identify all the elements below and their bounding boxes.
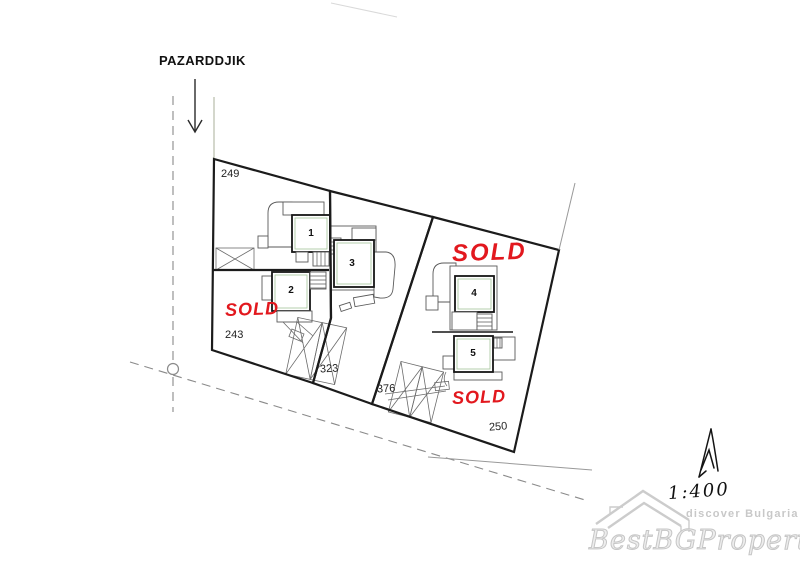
driveway-lines	[283, 322, 449, 400]
house-2-annex	[277, 311, 312, 322]
house-3-wing	[374, 252, 395, 298]
house-4-footprint	[426, 263, 497, 330]
house-1-annex	[283, 202, 324, 215]
house-3-annex	[352, 228, 376, 240]
sold-stamp-house-5: SOLD	[452, 387, 507, 407]
parking-cross-icon	[216, 248, 254, 270]
scan-artifact-line	[331, 3, 397, 17]
house-number-5: 5	[470, 349, 476, 359]
house-3-step	[339, 302, 351, 311]
house-5-annex	[454, 372, 502, 380]
plot-number-243: 243	[225, 330, 243, 341]
sold-stamp-house-4: SOLD	[452, 240, 527, 267]
house-4-tab	[426, 296, 438, 310]
house-3-footprint	[330, 226, 395, 311]
sold-stamp-plot-243: SOLD	[225, 299, 280, 319]
road-destination-label: PAZARDDJIK	[159, 54, 246, 67]
plot-number-250: 250	[489, 421, 508, 433]
survey-point-circle-icon	[168, 364, 179, 375]
house-4-room	[452, 312, 477, 330]
road-dashed-line-diagonal	[130, 362, 585, 500]
house-5-tab	[443, 356, 454, 369]
driveway-curve	[444, 372, 447, 386]
parking-area-1	[216, 248, 254, 270]
pazardjik-direction-arrow	[188, 79, 202, 132]
house-1-footprint	[258, 202, 330, 266]
watermark-brand: BestBGProperties	[589, 527, 800, 554]
house-number-1: 1	[308, 229, 314, 239]
house-1-step	[296, 252, 308, 262]
house-3-terrace	[353, 294, 374, 306]
house-number-4: 4	[471, 289, 477, 299]
site-plan-drawing	[0, 0, 800, 565]
survey-line-right	[559, 183, 575, 250]
house-number-3: 3	[349, 259, 355, 269]
survey-line-bottom	[428, 457, 592, 470]
plot-number-376: 376	[377, 384, 396, 396]
house-2-stairs	[310, 272, 326, 289]
map-scale-label: 1:400	[667, 481, 730, 503]
house-1-tab	[258, 236, 268, 248]
house-2-tab	[262, 276, 272, 300]
house-number-2: 2	[288, 286, 294, 296]
plot-number-323: 323	[320, 364, 339, 376]
watermark-tagline: discover Bulgaria	[686, 509, 799, 520]
north-arrow-icon	[699, 429, 718, 477]
site-plan-scan: PAZARDDJIK 249 243 323 376 250 1 2 3 4 5…	[0, 0, 800, 565]
plot-number-249: 249	[221, 169, 239, 180]
